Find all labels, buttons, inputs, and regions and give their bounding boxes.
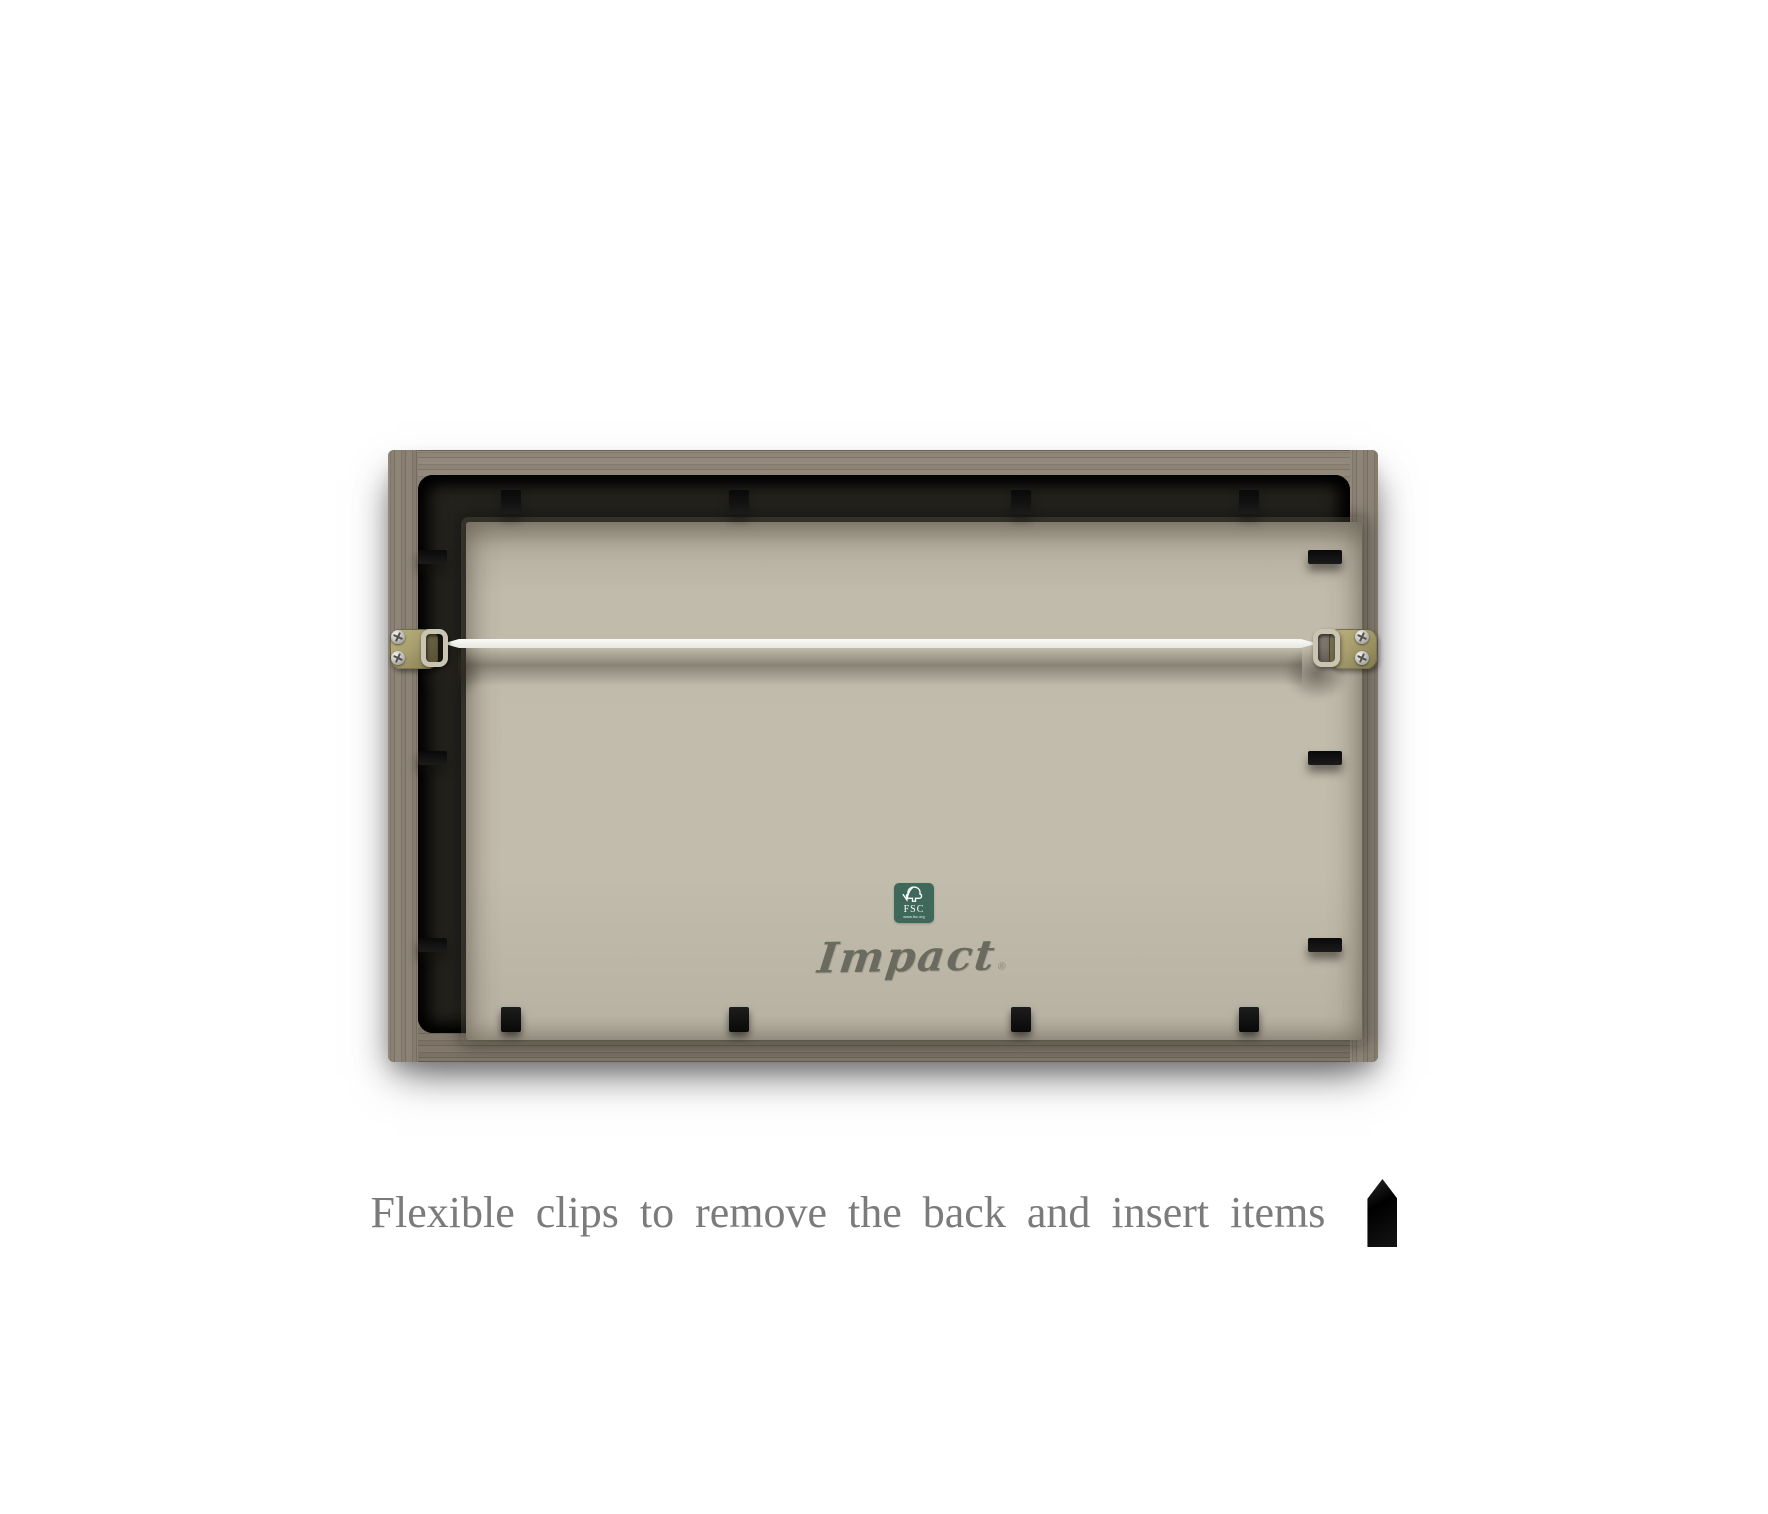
frame-wood-left: [388, 450, 418, 1062]
hanging-wire: [443, 639, 1317, 648]
wire-shadow: [458, 648, 1302, 686]
flexible-clip-right: [1308, 550, 1342, 564]
fsc-abbr: FSC: [904, 905, 925, 914]
flexible-clip-bottom: [501, 1007, 521, 1032]
fsc-tree-check-icon: [897, 885, 931, 905]
clip-icon: [1367, 1179, 1397, 1247]
fsc-badge: FSC www.fsc.org: [894, 883, 934, 923]
screw-icon: [1355, 651, 1369, 665]
brand-name: Impact: [815, 931, 999, 983]
backing-board: FSC www.fsc.org Impact®: [466, 522, 1362, 1040]
d-ring-left: [421, 629, 448, 667]
flexible-clip-left: [418, 751, 447, 765]
screw-icon: [391, 651, 405, 665]
flexible-clip-bottom: [1239, 1007, 1259, 1032]
trademark-symbol: ®: [996, 961, 1009, 972]
flexible-clip-top: [729, 490, 749, 514]
flexible-clip-top: [1011, 490, 1031, 514]
screw-icon: [391, 630, 405, 644]
flexible-clip-bottom: [1011, 1007, 1031, 1032]
flexible-clip-bottom: [729, 1007, 749, 1032]
caption: Flexible clips to remove the back and in…: [371, 1191, 1326, 1235]
flexible-clip-left: [418, 938, 447, 952]
flexible-clip-right: [1308, 751, 1342, 765]
brand-logo: Impact®: [815, 934, 1012, 979]
picture-frame-back: FSC www.fsc.org Impact®: [388, 450, 1378, 1062]
flexible-clip-left: [418, 550, 447, 564]
d-ring-right: [1313, 629, 1340, 667]
caption-row: Flexible clips to remove the back and in…: [0, 1178, 1768, 1248]
flexible-clip-top: [1239, 490, 1259, 514]
flexible-clip-top: [501, 490, 521, 514]
flexible-clip-right: [1308, 938, 1342, 952]
fsc-website: www.fsc.org: [903, 914, 925, 920]
frame-inner-lip: FSC www.fsc.org Impact®: [418, 475, 1350, 1033]
screw-icon: [1355, 630, 1369, 644]
